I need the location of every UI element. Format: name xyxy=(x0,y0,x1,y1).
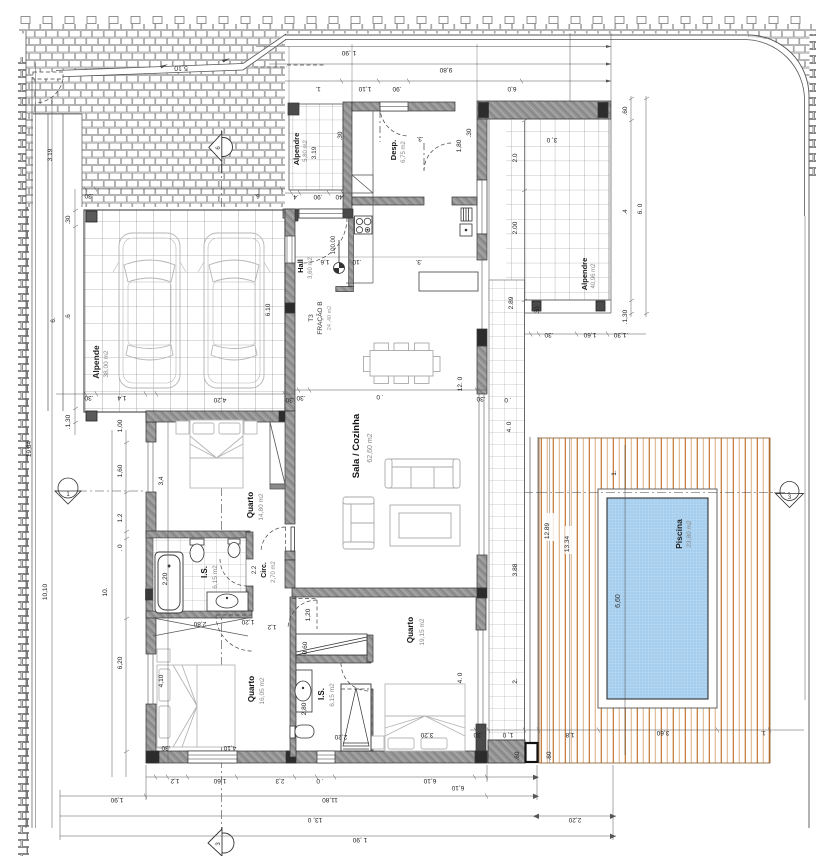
svg-text:2,70 m2: 2,70 m2 xyxy=(271,561,277,583)
svg-text:3,60 m2: 3,60 m2 xyxy=(308,257,314,279)
svg-text:62,60 m2: 62,60 m2 xyxy=(367,433,374,462)
svg-text:Quarto: Quarto xyxy=(246,492,255,518)
svg-text:Sala / Cozinha: Sala / Cozinha xyxy=(351,413,362,478)
svg-text:Hall: Hall xyxy=(296,259,305,273)
svg-text:11,80: 11,80 xyxy=(322,796,338,803)
svg-text:. 0: . 0 xyxy=(117,544,124,552)
svg-text:6.: 6. xyxy=(254,192,260,199)
svg-text:.30: .30 xyxy=(476,395,485,402)
svg-text:.30: .30 xyxy=(544,331,553,338)
svg-text:.30: .30 xyxy=(84,394,93,401)
svg-text:1,2: 1,2 xyxy=(267,623,276,630)
svg-text:.60: .60 xyxy=(546,751,553,760)
svg-text:10,10: 10,10 xyxy=(42,583,49,600)
svg-text:1,60: 1,60 xyxy=(583,331,596,338)
svg-text:3.88: 3.88 xyxy=(512,563,519,576)
svg-text:. 0: . 0 xyxy=(376,393,384,400)
svg-text:12. 0: 12. 0 xyxy=(457,376,464,391)
svg-text:30: 30 xyxy=(534,306,541,314)
svg-text:19,15 m2: 19,15 m2 xyxy=(419,618,426,645)
svg-text:12.89: 12.89 xyxy=(544,522,551,539)
svg-text:FRAÇÃO B: FRAÇÃO B xyxy=(315,301,324,334)
svg-text:19,84: 19,84 xyxy=(26,440,33,457)
svg-text:6,60: 6,60 xyxy=(615,594,622,608)
svg-text:2,80: 2,80 xyxy=(193,620,206,627)
svg-text:1.: 1. xyxy=(611,470,618,476)
svg-text:1,10: 1,10 xyxy=(358,85,371,92)
svg-text:6,10: 6,10 xyxy=(423,777,436,784)
svg-text:.40: .40 xyxy=(335,193,344,200)
svg-text:2,20: 2,20 xyxy=(568,816,581,823)
svg-text:Quarto: Quarto xyxy=(247,676,256,702)
svg-text:1,8: 1,8 xyxy=(565,731,574,738)
svg-text:1,60: 1,60 xyxy=(213,777,226,784)
svg-text:.90: .90 xyxy=(392,85,401,92)
svg-text:6,20: 6,20 xyxy=(117,656,124,669)
svg-text:4,20: 4,20 xyxy=(213,396,226,403)
svg-text:6.10: 6.10 xyxy=(265,303,272,316)
svg-text:.30: .30 xyxy=(84,192,93,199)
svg-text:6.: 6. xyxy=(50,317,57,323)
svg-text:Piscina: Piscina xyxy=(674,519,684,549)
svg-text:.4: .4 xyxy=(622,209,629,215)
svg-text:1,6: 1,6 xyxy=(320,258,329,265)
svg-text:38,00 m2: 38,00 m2 xyxy=(103,350,110,377)
svg-text:Desp.: Desp. xyxy=(389,140,398,160)
svg-text:.1,30: .1,30 xyxy=(65,414,72,429)
svg-text:2.0: 2.0 xyxy=(512,153,519,162)
svg-text:1.: 1. xyxy=(315,85,321,92)
svg-text:6,15 m2: 6,15 m2 xyxy=(212,565,219,589)
svg-text:.30: .30 xyxy=(161,744,170,751)
svg-text:Quarto: Quarto xyxy=(406,617,415,643)
svg-text:1,2: 1,2 xyxy=(170,777,179,784)
svg-text:I.S.: I.S. xyxy=(200,566,209,578)
svg-text:3.19: 3.19 xyxy=(311,146,318,159)
svg-text:2,80: 2,80 xyxy=(301,702,308,715)
svg-text:.30: .30 xyxy=(285,396,294,403)
svg-text:Alpendre: Alpendre xyxy=(292,133,301,166)
svg-text:2.: 2. xyxy=(512,678,519,684)
svg-text:6,15 m2: 6,15 m2 xyxy=(329,683,336,707)
svg-text:2.00: 2.00 xyxy=(512,221,519,234)
svg-text:.1,30: .1,30 xyxy=(613,331,628,338)
svg-text:1,4: 1,4 xyxy=(117,394,126,401)
svg-text:.3.: .3. xyxy=(415,258,422,265)
svg-text:1,20: 1,20 xyxy=(305,608,312,621)
svg-text:.30: .30 xyxy=(337,131,344,140)
svg-text:1.2: 1.2 xyxy=(117,513,124,522)
svg-text:6,75 m2: 6,75 m2 xyxy=(401,141,407,163)
svg-text:.90: .90 xyxy=(313,193,322,200)
svg-text:40,96 m2: 40,96 m2 xyxy=(591,263,597,289)
svg-text:4. 0: 4. 0 xyxy=(457,672,464,683)
svg-text:13, 0: 13, 0 xyxy=(307,816,322,823)
svg-text:23,80 m2: 23,80 m2 xyxy=(686,520,693,547)
svg-text:4,10: 4,10 xyxy=(158,674,165,687)
svg-text:Alpende: Alpende xyxy=(91,345,101,379)
svg-text:14,80 m2: 14,80 m2 xyxy=(258,493,265,520)
svg-text:.60: .60 xyxy=(622,106,629,115)
svg-text:T3: T3 xyxy=(308,314,315,322)
svg-text:Circ.: Circ. xyxy=(261,562,268,578)
svg-text:4. 0: 4. 0 xyxy=(506,421,513,432)
svg-text:1.: 1. xyxy=(760,729,766,736)
svg-text:.4: .4 xyxy=(293,193,299,200)
svg-text:.30: .30 xyxy=(473,731,482,738)
svg-text:3,60: 3,60 xyxy=(656,729,669,736)
svg-text:2,3: 2,3 xyxy=(275,777,284,784)
svg-text:13.34: 13.34 xyxy=(564,535,571,552)
svg-text:2.2: 2.2 xyxy=(252,565,258,574)
svg-text:0,60: 0,60 xyxy=(302,641,309,654)
svg-text:.30: .30 xyxy=(65,215,72,224)
svg-text:6. 0: 6. 0 xyxy=(637,203,644,214)
svg-text:. 0: . 0 xyxy=(504,396,512,403)
svg-text:. 0: . 0 xyxy=(316,777,324,784)
svg-text:1,00: 1,00 xyxy=(117,419,124,432)
svg-text:Alpendre: Alpendre xyxy=(580,258,589,291)
svg-text:1,60: 1,60 xyxy=(117,464,124,477)
svg-text:1,90: 1,90 xyxy=(110,796,123,803)
svg-text:3, 0: 3, 0 xyxy=(546,136,557,143)
svg-text:I.S.: I.S. xyxy=(317,688,326,700)
svg-text:1 ,90: 1 ,90 xyxy=(341,49,356,56)
svg-text:3.19: 3.19 xyxy=(47,148,54,161)
svg-text:6,0: 6,0 xyxy=(507,85,516,92)
svg-text:16,05 m2: 16,05 m2 xyxy=(259,677,266,704)
svg-text:24 ,40 m2: 24 ,40 m2 xyxy=(327,306,333,330)
svg-text:5,10: 5,10 xyxy=(174,64,188,71)
svg-text:3,20: 3,20 xyxy=(420,731,433,738)
svg-text:100.00: 100.00 xyxy=(331,235,337,254)
svg-text:2.89: 2.89 xyxy=(508,296,515,309)
svg-text:3,4: 3,4 xyxy=(158,476,165,485)
svg-text:4,10: 4,10 xyxy=(223,744,236,751)
svg-text:9,80: 9,80 xyxy=(439,66,452,73)
svg-text:1,80: 1,80 xyxy=(456,139,463,152)
svg-text:.3.: .3. xyxy=(416,135,423,142)
svg-text:5,80 m2: 5,80 m2 xyxy=(303,140,309,162)
svg-text:2,20: 2,20 xyxy=(334,733,347,740)
svg-text:10.: 10. xyxy=(102,587,109,596)
svg-text:.1,30: .1,30 xyxy=(622,309,629,324)
svg-text:.60: .60 xyxy=(514,751,521,760)
svg-text:.10: .10 xyxy=(352,258,361,265)
svg-text:2,20: 2,20 xyxy=(162,572,169,585)
svg-text:1, 0: 1, 0 xyxy=(502,731,513,738)
svg-text:1,20: 1,20 xyxy=(241,618,254,625)
svg-text:.30: .30 xyxy=(296,394,305,401)
svg-text:.30: .30 xyxy=(466,128,473,137)
svg-text:1 ,90: 1 ,90 xyxy=(352,836,367,843)
svg-text:.6: .6 xyxy=(65,314,72,320)
svg-text:6,10: 6,10 xyxy=(451,784,464,791)
